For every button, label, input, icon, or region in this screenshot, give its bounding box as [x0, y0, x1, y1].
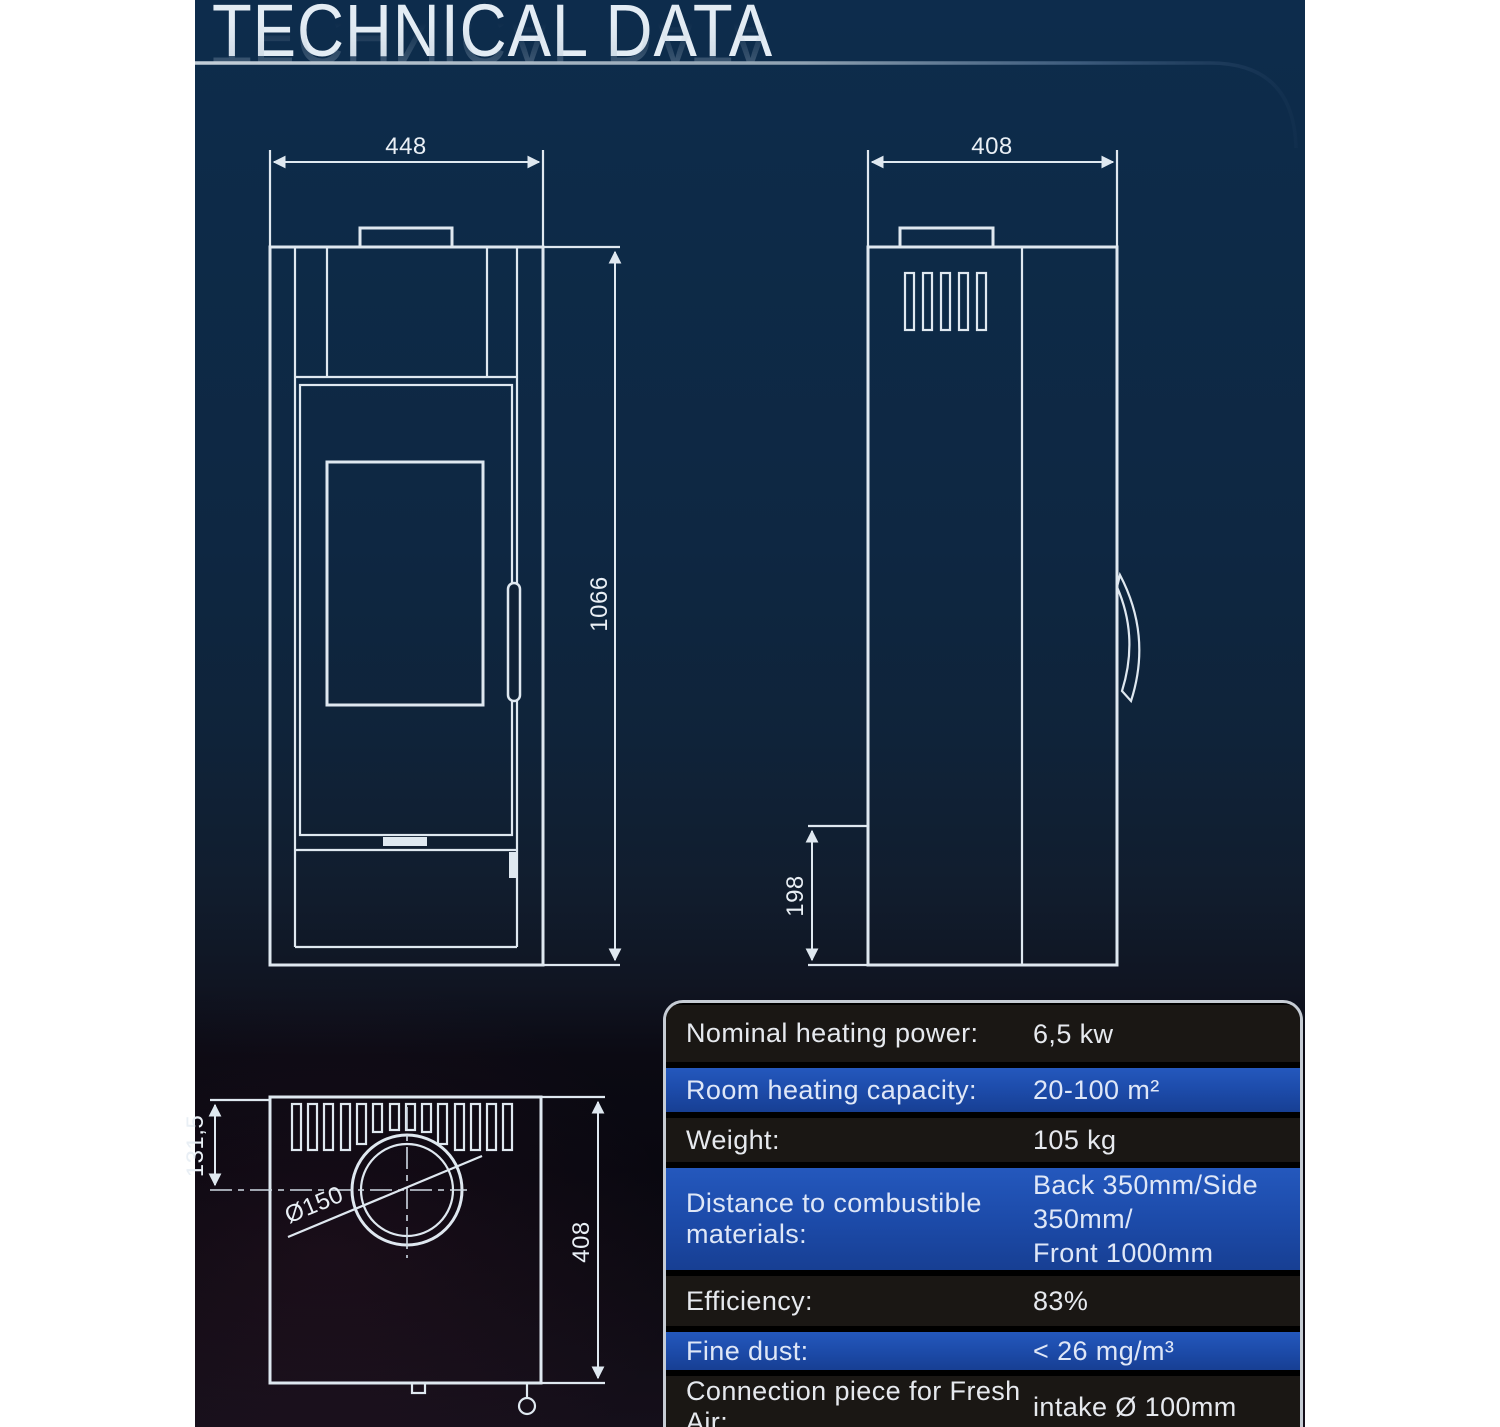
spec-label: Distance to combustible materials:: [666, 1188, 1033, 1250]
spec-value: 105 kg: [1033, 1123, 1300, 1157]
side-door-handle: [1117, 575, 1139, 701]
table-row: Weight: 105 kg: [666, 1118, 1300, 1162]
front-view-drawing: 448 1066: [270, 133, 620, 965]
table-row: Nominal heating power: 6,5 kw: [666, 1005, 1300, 1062]
front-height-dim-label: 1066: [586, 576, 613, 631]
table-row: Connection piece for Fresh Air: intake Ø…: [666, 1376, 1300, 1427]
spec-value: intake Ø 100mm: [1033, 1390, 1300, 1424]
top-edge-keyhole: [519, 1398, 535, 1414]
table-row: Efficiency: 83%: [666, 1276, 1300, 1326]
spec-value: 83%: [1033, 1284, 1300, 1318]
spec-table: Nominal heating power: 6,5 kw Room heati…: [663, 1000, 1303, 1427]
table-row: Distance to combustible materials: Back …: [666, 1168, 1300, 1270]
spec-value: 6,5 kw: [1033, 1017, 1300, 1051]
spec-value: Back 350mm/Side 350mm/ Front 1000mm: [1033, 1168, 1300, 1270]
spec-label: Room heating capacity:: [666, 1075, 1033, 1106]
flue-diameter-label: Ø150: [281, 1181, 347, 1229]
spec-value-line1: Back 350mm/Side 350mm/: [1033, 1168, 1290, 1236]
side-depth-dim-label: 408: [971, 133, 1013, 160]
top-vent-slots: [292, 1104, 512, 1150]
spec-label: Fine dust:: [666, 1336, 1033, 1367]
spec-label: Connection piece for Fresh Air:: [666, 1376, 1033, 1427]
spec-label: Efficiency:: [666, 1286, 1033, 1317]
table-row: Room heating capacity: 20-100 m²: [666, 1068, 1300, 1112]
front-width-dim-label: 448: [385, 133, 427, 160]
spec-value-line2: Front 1000mm: [1033, 1236, 1290, 1270]
top-flue-offset-dim-label: 131,5: [182, 1115, 209, 1178]
technical-data-sheet: TECHNICAL DATA TECHNICAL DATA .ln{stroke…: [0, 0, 1500, 1427]
side-vent-slots: [905, 273, 986, 330]
front-door-handle: [508, 583, 520, 701]
side-base-dim-label: 198: [782, 875, 809, 917]
table-row: Fine dust: < 26 mg/m³: [666, 1332, 1300, 1370]
top-view-drawing: Ø150 131,5 408: [182, 1097, 605, 1414]
spec-value: < 26 mg/m³: [1033, 1334, 1300, 1368]
top-depth-dim-label: 408: [568, 1221, 595, 1263]
front-latch: [383, 837, 427, 846]
spec-value: 20-100 m²: [1033, 1073, 1300, 1107]
spec-label: Weight:: [666, 1125, 1033, 1156]
spec-label: Nominal heating power:: [666, 1018, 1033, 1049]
side-view-drawing: 408 198: [782, 133, 1139, 965]
header-divider-swoosh: [195, 63, 1296, 148]
